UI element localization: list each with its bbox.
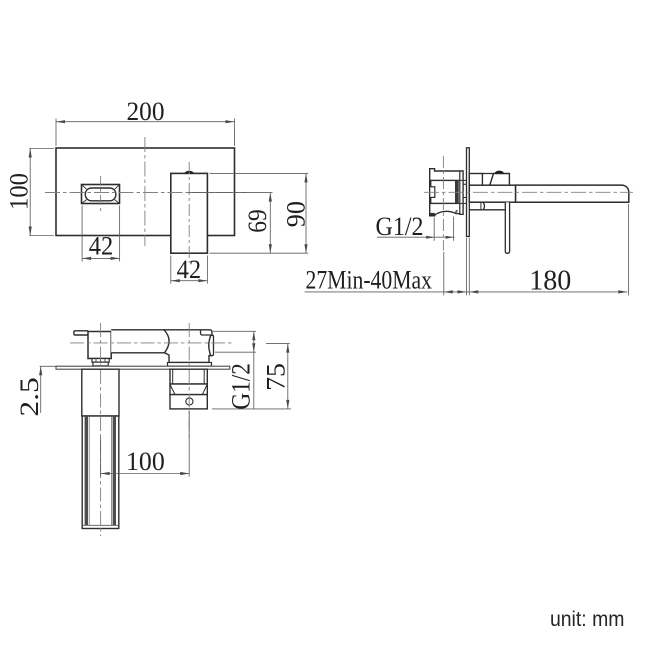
svg-text:90: 90 [281,201,310,227]
svg-text:180: 180 [529,266,571,297]
svg-text:200: 200 [127,97,165,126]
svg-text:27Min-40Max: 27Min-40Max [306,266,433,295]
svg-text:100: 100 [5,173,34,210]
svg-text:100: 100 [126,447,165,476]
svg-text:2.5: 2.5 [15,377,44,417]
svg-text:unit: mm: unit: mm [550,608,625,631]
svg-text:69: 69 [243,209,272,233]
svg-text:42: 42 [177,255,202,284]
svg-text:G1/2: G1/2 [376,212,424,241]
svg-text:75: 75 [261,363,290,391]
svg-text:G1/2: G1/2 [227,363,256,410]
svg-text:42: 42 [89,232,114,261]
